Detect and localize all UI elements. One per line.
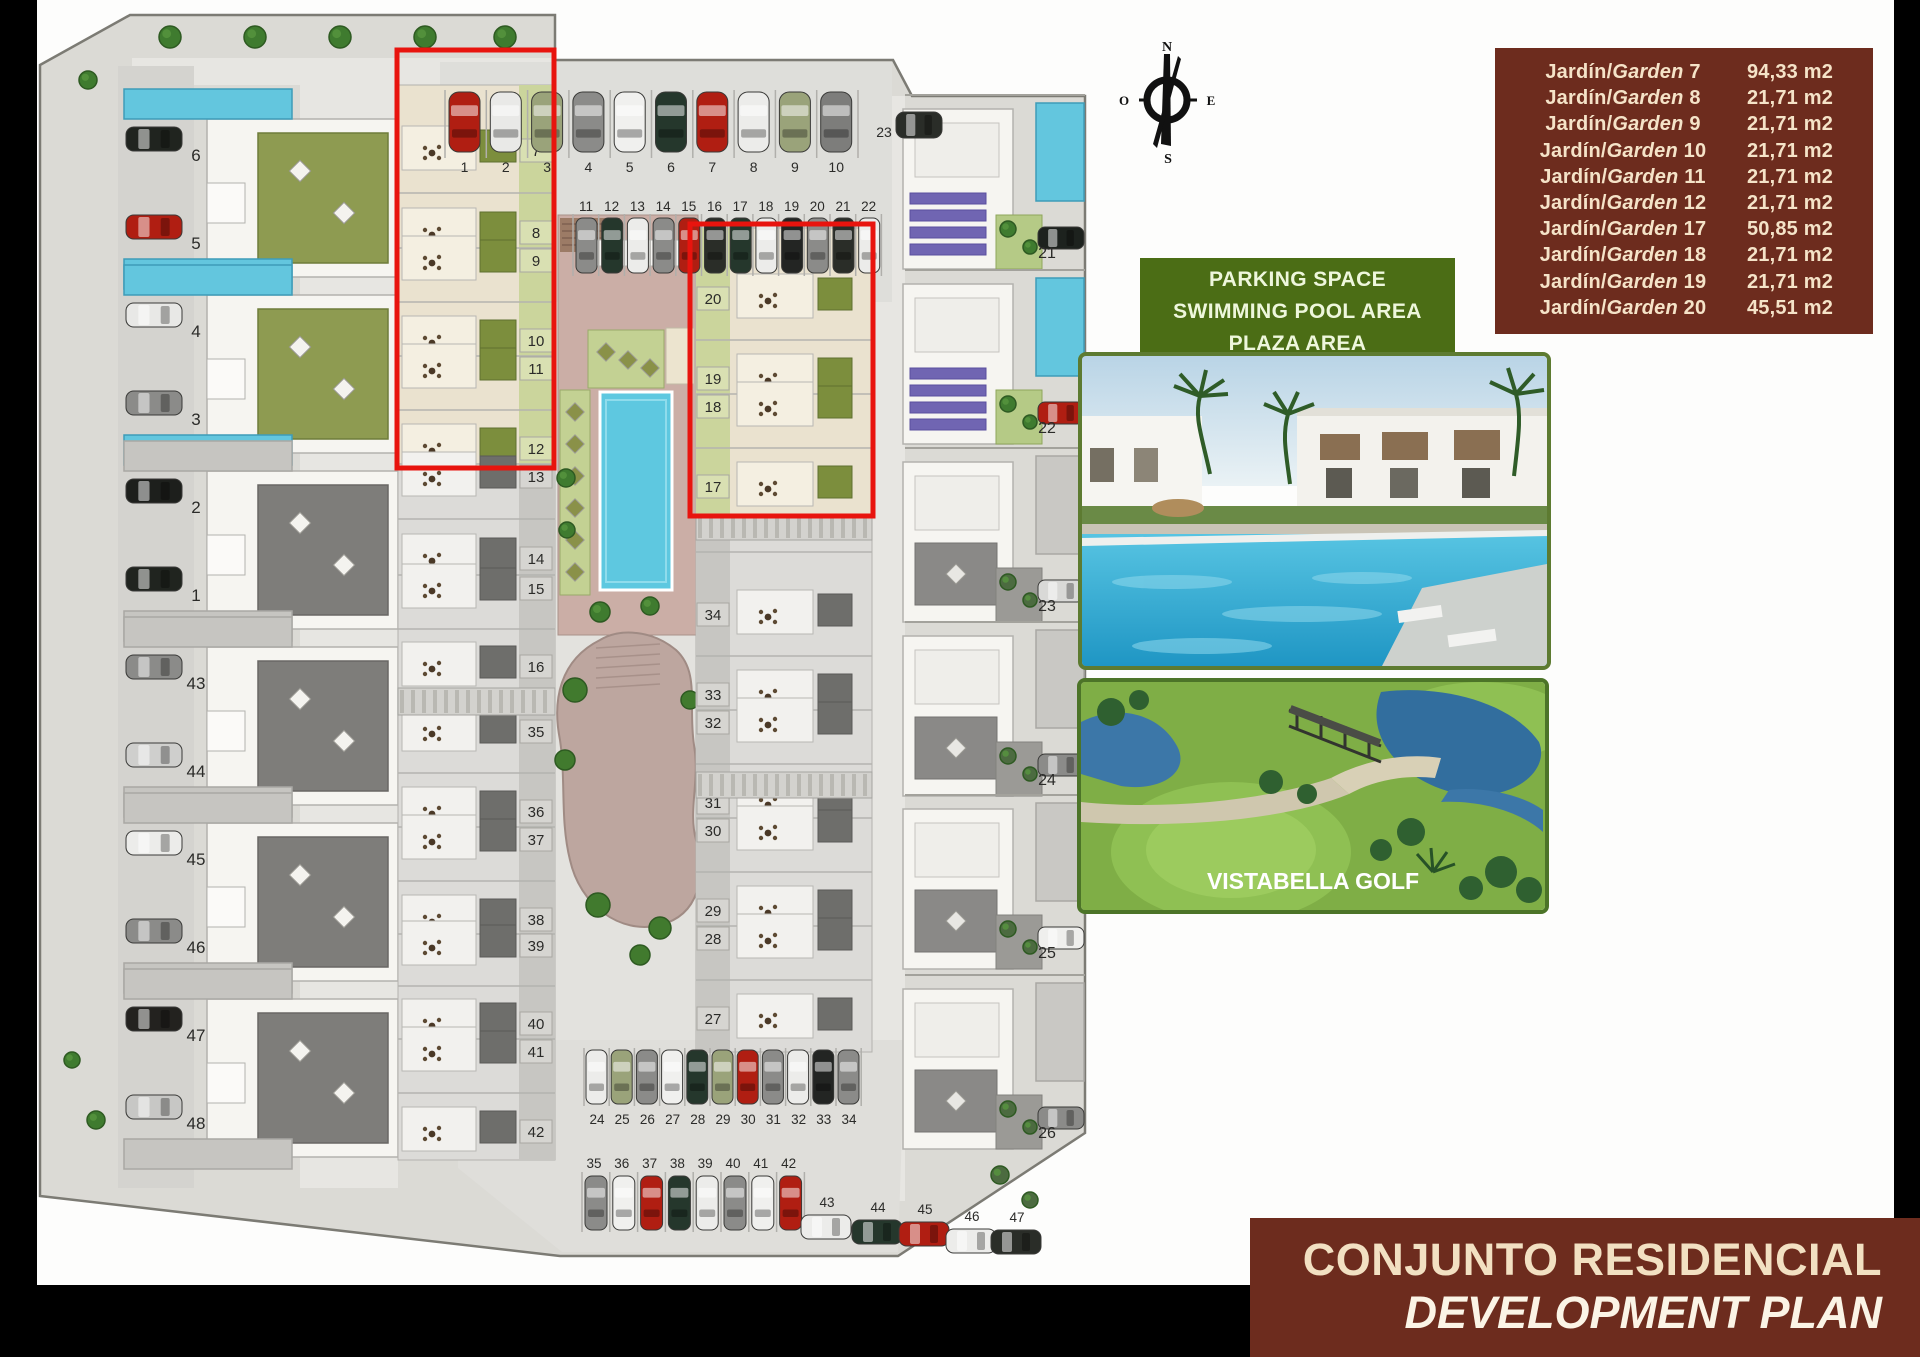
svg-text:37: 37 <box>528 832 545 849</box>
svg-text:12: 12 <box>528 441 545 458</box>
villa-pool <box>1036 278 1084 376</box>
svg-text:48: 48 <box>187 1114 206 1133</box>
tree-icon <box>414 26 436 48</box>
svg-text:31: 31 <box>766 1112 781 1127</box>
tree-icon <box>641 597 659 615</box>
car-icon <box>696 1176 718 1230</box>
compass-n-label: N <box>1162 40 1172 55</box>
banner-title: CONJUNTO RESIDENCIAL <box>1250 1234 1882 1286</box>
car-icon <box>838 1050 859 1104</box>
svg-text:2: 2 <box>191 498 200 517</box>
golf-photo: VISTABELLA GOLF <box>1077 678 1549 914</box>
svg-text:34: 34 <box>705 607 722 624</box>
svg-text:12: 12 <box>604 199 619 214</box>
svg-text:42: 42 <box>528 1124 545 1141</box>
svg-text:3: 3 <box>191 410 200 429</box>
car-icon <box>126 831 182 855</box>
plaza-area <box>557 633 700 927</box>
tree-icon <box>1023 940 1037 954</box>
car-icon <box>738 92 769 152</box>
garden-legend-table: Jardín/Garden 794,33 m2Jardín/Garden 821… <box>1495 48 1873 334</box>
legend-area-value: 21,71 m2 <box>1731 113 1849 136</box>
frame-bar-left <box>0 0 37 1357</box>
villa-patio <box>1036 983 1084 1081</box>
svg-text:19: 19 <box>705 371 722 388</box>
frame-bar-right <box>1894 0 1920 1357</box>
legend-row: Jardín/Garden 1921,71 m2 <box>1515 271 1849 297</box>
svg-text:4: 4 <box>585 159 593 175</box>
svg-text:19: 19 <box>784 199 799 214</box>
svg-text:11: 11 <box>579 199 593 214</box>
car-icon <box>586 1050 607 1104</box>
compass-icon: N S E O <box>1115 40 1220 165</box>
svg-text:33: 33 <box>705 687 722 704</box>
svg-text:3: 3 <box>543 159 551 175</box>
svg-text:21: 21 <box>835 199 850 214</box>
car-icon <box>585 1176 607 1230</box>
svg-text:44: 44 <box>187 762 206 781</box>
car-icon <box>896 112 942 138</box>
svg-text:9: 9 <box>791 159 799 175</box>
car-icon <box>627 218 648 273</box>
svg-text:45: 45 <box>187 850 206 869</box>
tree-icon <box>1023 415 1037 429</box>
svg-text:14: 14 <box>528 551 545 568</box>
tree-icon <box>87 1111 105 1129</box>
lot-patio <box>124 1139 292 1169</box>
svg-text:47: 47 <box>187 1026 206 1045</box>
solar-panel <box>910 210 986 221</box>
svg-text:5: 5 <box>191 234 200 253</box>
car-icon <box>126 567 182 591</box>
legend-row: Jardín/Garden 821,71 m2 <box>1515 87 1849 113</box>
svg-text:8: 8 <box>532 225 540 242</box>
car-icon <box>899 1222 949 1246</box>
legend-garden-label: Jardín/Garden 10 <box>1515 140 1731 163</box>
tree-icon <box>79 71 97 89</box>
svg-text:30: 30 <box>741 1112 756 1127</box>
tree-icon <box>1000 921 1016 937</box>
car-icon <box>779 92 810 152</box>
tree-icon <box>1022 1192 1038 1208</box>
car-icon <box>532 92 563 152</box>
solar-panel <box>910 385 986 396</box>
svg-text:41: 41 <box>528 1044 545 1061</box>
legend-area-value: 94,33 m2 <box>1731 61 1849 84</box>
svg-text:43: 43 <box>819 1195 834 1210</box>
legend-row: Jardín/Garden 1021,71 m2 <box>1515 140 1849 166</box>
car-icon <box>668 1176 690 1230</box>
legend-row: Jardín/Garden 1221,71 m2 <box>1515 192 1849 218</box>
svg-text:17: 17 <box>733 199 748 214</box>
compass-w-label: O <box>1119 93 1129 108</box>
amenity-line: PARKING SPACE <box>1140 264 1455 296</box>
tree-icon <box>1023 767 1037 781</box>
right-townhouse-strip: 201918173433323130292827 <box>696 228 872 1052</box>
car-icon <box>126 743 182 767</box>
svg-text:42: 42 <box>781 1156 796 1171</box>
svg-text:26: 26 <box>1038 1125 1056 1142</box>
svg-text:46: 46 <box>187 938 206 957</box>
tree-icon <box>1023 593 1037 607</box>
pool-photo-image <box>1082 356 1547 666</box>
car-icon <box>613 1176 635 1230</box>
development-plan-page: 6543214344454647487891011121314151635363… <box>0 0 1920 1357</box>
compass-e-label: E <box>1207 93 1216 108</box>
tree-icon <box>991 1166 1009 1184</box>
car-icon <box>126 919 182 943</box>
lot-patio <box>124 441 292 471</box>
legend-area-value: 21,71 m2 <box>1731 140 1849 163</box>
svg-text:28: 28 <box>690 1112 705 1127</box>
svg-text:39: 39 <box>698 1156 713 1171</box>
tree-icon <box>329 26 351 48</box>
svg-text:41: 41 <box>753 1156 768 1171</box>
middle-townhouse-strip: 789101112131415163536373839404142 <box>398 85 555 1160</box>
legend-area-value: 45,51 m2 <box>1731 297 1849 320</box>
svg-text:27: 27 <box>665 1112 680 1127</box>
svg-text:13: 13 <box>630 199 645 214</box>
svg-text:37: 37 <box>642 1156 657 1171</box>
car-icon <box>662 1050 683 1104</box>
car-icon <box>126 479 182 503</box>
svg-text:32: 32 <box>705 715 722 732</box>
car-icon <box>656 92 687 152</box>
legend-garden-label: Jardín/Garden 12 <box>1515 192 1731 215</box>
car-icon <box>697 92 728 152</box>
svg-text:35: 35 <box>586 1156 601 1171</box>
villa-pool <box>1036 103 1084 201</box>
svg-text:2: 2 <box>502 159 510 175</box>
svg-text:13: 13 <box>528 469 545 486</box>
svg-text:23: 23 <box>1038 598 1056 615</box>
car-icon <box>636 1050 657 1104</box>
car-icon <box>780 1176 802 1230</box>
legend-garden-label: Jardín/Garden 17 <box>1515 218 1731 241</box>
tree-icon <box>64 1052 80 1068</box>
legend-garden-label: Jardín/Garden 11 <box>1515 166 1731 189</box>
svg-text:39: 39 <box>528 938 545 955</box>
svg-text:15: 15 <box>681 199 696 214</box>
svg-text:7: 7 <box>708 159 716 175</box>
legend-area-value: 21,71 m2 <box>1731 192 1849 215</box>
tree-icon <box>1000 396 1016 412</box>
solar-panel <box>910 227 986 238</box>
lot-patio <box>124 793 292 823</box>
car-icon <box>126 303 182 327</box>
car-icon <box>724 1176 746 1230</box>
legend-row: Jardín/Garden 1821,71 m2 <box>1515 244 1849 270</box>
car-icon <box>449 92 480 152</box>
svg-text:36: 36 <box>528 804 545 821</box>
car-icon <box>687 1050 708 1104</box>
svg-text:18: 18 <box>758 199 773 214</box>
compass-s-label: S <box>1164 152 1172 165</box>
svg-text:33: 33 <box>816 1112 831 1127</box>
tree-icon <box>559 522 575 538</box>
svg-text:20: 20 <box>705 291 722 308</box>
svg-text:14: 14 <box>656 199 672 214</box>
community-pool <box>600 392 672 590</box>
svg-text:47: 47 <box>1009 1210 1024 1225</box>
svg-text:6: 6 <box>191 146 200 165</box>
svg-text:16: 16 <box>707 199 722 214</box>
tree-icon <box>494 26 516 48</box>
svg-text:32: 32 <box>791 1112 806 1127</box>
svg-text:22: 22 <box>861 199 876 214</box>
car-icon <box>813 1050 834 1104</box>
tree-icon <box>557 469 575 487</box>
legend-garden-label: Jardín/Garden 18 <box>1515 244 1731 267</box>
pool-photo <box>1078 352 1551 670</box>
tree-icon <box>1000 221 1016 237</box>
pedestrian-crossing <box>696 516 872 540</box>
legend-row: Jardín/Garden 1121,71 m2 <box>1515 166 1849 192</box>
legend-row: Jardín/Garden 1750,85 m2 <box>1515 218 1849 244</box>
tree-icon <box>244 26 266 48</box>
tree-icon <box>1000 1101 1016 1117</box>
car-icon <box>752 1176 774 1230</box>
svg-text:40: 40 <box>725 1156 740 1171</box>
svg-text:40: 40 <box>528 1016 545 1033</box>
solar-panel <box>910 419 986 430</box>
tree-icon <box>159 26 181 48</box>
svg-text:29: 29 <box>715 1112 730 1127</box>
car-icon <box>737 1050 758 1104</box>
legend-area-value: 21,71 m2 <box>1731 87 1849 110</box>
svg-text:29: 29 <box>705 903 722 920</box>
svg-text:18: 18 <box>705 399 722 416</box>
golf-photo-image: VISTABELLA GOLF <box>1081 682 1545 910</box>
svg-text:1: 1 <box>461 159 469 175</box>
svg-text:4: 4 <box>191 322 200 341</box>
lot-pool <box>124 265 292 295</box>
svg-text:28: 28 <box>705 931 722 948</box>
legend-area-value: 21,71 m2 <box>1731 166 1849 189</box>
tree-icon <box>1000 748 1016 764</box>
pedestrian-crossing <box>696 772 872 798</box>
amenity-line: SWIMMING POOL AREA <box>1140 296 1455 328</box>
svg-text:20: 20 <box>810 199 825 214</box>
legend-garden-label: Jardín/Garden 20 <box>1515 297 1731 320</box>
car-icon <box>126 127 182 151</box>
svg-text:5: 5 <box>626 159 634 175</box>
solar-panel <box>910 368 986 379</box>
svg-text:6: 6 <box>667 159 675 175</box>
svg-text:21: 21 <box>1038 245 1056 262</box>
legend-row: Jardín/Garden 794,33 m2 <box>1515 61 1849 87</box>
tree-icon <box>1023 1120 1037 1134</box>
car-icon <box>126 391 182 415</box>
svg-text:1: 1 <box>191 586 200 605</box>
svg-text:10: 10 <box>828 159 844 175</box>
solar-panel <box>910 402 986 413</box>
solar-panel <box>910 193 986 204</box>
svg-text:30: 30 <box>705 823 722 840</box>
svg-text:11: 11 <box>528 361 544 378</box>
svg-text:8: 8 <box>750 159 758 175</box>
svg-text:25: 25 <box>615 1112 630 1127</box>
car-icon <box>641 1176 663 1230</box>
car-icon <box>614 92 645 152</box>
tree-icon <box>590 602 610 622</box>
svg-text:17: 17 <box>705 479 722 496</box>
title-banner: CONJUNTO RESIDENCIAL DEVELOPMENT PLAN <box>1250 1218 1920 1357</box>
car-icon <box>126 655 182 679</box>
car-icon <box>946 1229 996 1253</box>
svg-text:22: 22 <box>1038 420 1056 437</box>
svg-text:38: 38 <box>528 912 545 929</box>
legend-area-value: 21,71 m2 <box>1731 244 1849 267</box>
svg-text:27: 27 <box>705 1011 722 1028</box>
svg-text:35: 35 <box>528 724 545 741</box>
legend-row: Jardín/Garden 2045,51 m2 <box>1515 297 1849 323</box>
legend-garden-label: Jardín/Garden 7 <box>1515 61 1731 84</box>
svg-text:44: 44 <box>870 1200 886 1215</box>
svg-text:46: 46 <box>964 1209 979 1224</box>
lot-pool <box>124 89 292 119</box>
car-icon <box>611 1050 632 1104</box>
svg-text:34: 34 <box>841 1112 857 1127</box>
svg-text:38: 38 <box>670 1156 685 1171</box>
car-icon <box>126 1095 182 1119</box>
car-icon <box>991 1230 1041 1254</box>
svg-text:24: 24 <box>589 1112 605 1127</box>
svg-text:43: 43 <box>187 674 206 693</box>
legend-garden-label: Jardín/Garden 9 <box>1515 113 1731 136</box>
svg-text:16: 16 <box>528 659 545 676</box>
svg-text:15: 15 <box>528 581 545 598</box>
car-icon <box>712 1050 733 1104</box>
tree-icon <box>1000 574 1016 590</box>
car-icon <box>762 1050 783 1104</box>
pedestrian-crossing <box>398 688 555 715</box>
car-icon <box>602 218 623 273</box>
svg-text:10: 10 <box>528 333 545 350</box>
svg-text:25: 25 <box>1038 945 1056 962</box>
car-icon <box>821 92 852 152</box>
svg-text:45: 45 <box>917 1202 932 1217</box>
legend-row: Jardín/Garden 921,71 m2 <box>1515 113 1849 139</box>
car-icon <box>490 92 521 152</box>
car-icon <box>126 215 182 239</box>
golf-photo-caption: VISTABELLA GOLF <box>1207 868 1419 894</box>
legend-area-value: 50,85 m2 <box>1731 218 1849 241</box>
svg-text:9: 9 <box>532 253 540 270</box>
banner-subtitle: DEVELOPMENT PLAN <box>1250 1286 1882 1340</box>
svg-text:36: 36 <box>614 1156 629 1171</box>
svg-text:23: 23 <box>876 124 892 140</box>
car-icon <box>573 92 604 152</box>
car-icon <box>653 218 674 273</box>
legend-area-value: 21,71 m2 <box>1731 271 1849 294</box>
car-icon <box>126 1007 182 1031</box>
car-icon <box>788 1050 809 1104</box>
lot-patio <box>124 617 292 647</box>
legend-garden-label: Jardín/Garden 8 <box>1515 87 1731 110</box>
svg-text:24: 24 <box>1038 772 1056 789</box>
svg-text:26: 26 <box>640 1112 655 1127</box>
car-icon <box>801 1215 851 1239</box>
legend-garden-label: Jardín/Garden 19 <box>1515 271 1731 294</box>
lot-patio <box>124 969 292 999</box>
villa-patio <box>1036 456 1084 554</box>
solar-panel <box>910 244 986 255</box>
central-amenity-area <box>555 215 700 965</box>
tree-icon <box>1023 240 1037 254</box>
car-icon <box>576 218 597 273</box>
car-icon <box>852 1220 902 1244</box>
